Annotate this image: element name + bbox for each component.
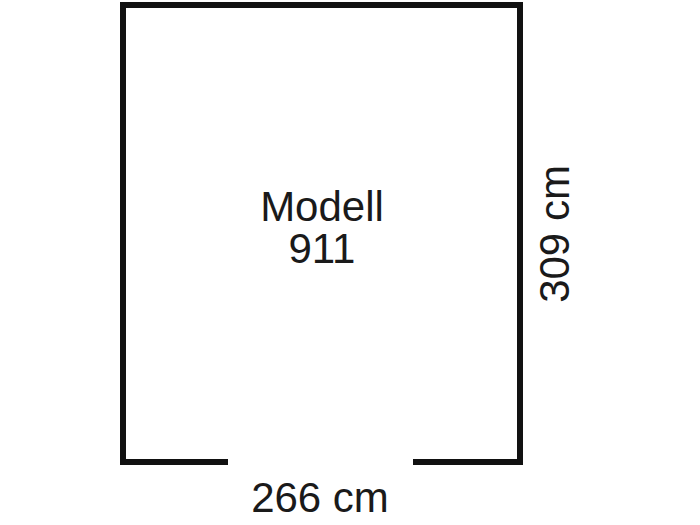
door-opening-gap [228, 459, 413, 465]
model-title: Modell 911 [172, 186, 472, 270]
width-dimension-label: 266 cm [170, 477, 470, 519]
floor-plan-diagram: Modell 911 266 cm 309 cm [0, 0, 700, 525]
bottom-wall-right-segment [413, 459, 523, 465]
bottom-wall-left-segment [120, 459, 228, 465]
height-dimension-label: 309 cm [534, 165, 576, 303]
model-title-line1: Modell [172, 186, 472, 228]
model-title-line2: 911 [172, 228, 472, 270]
